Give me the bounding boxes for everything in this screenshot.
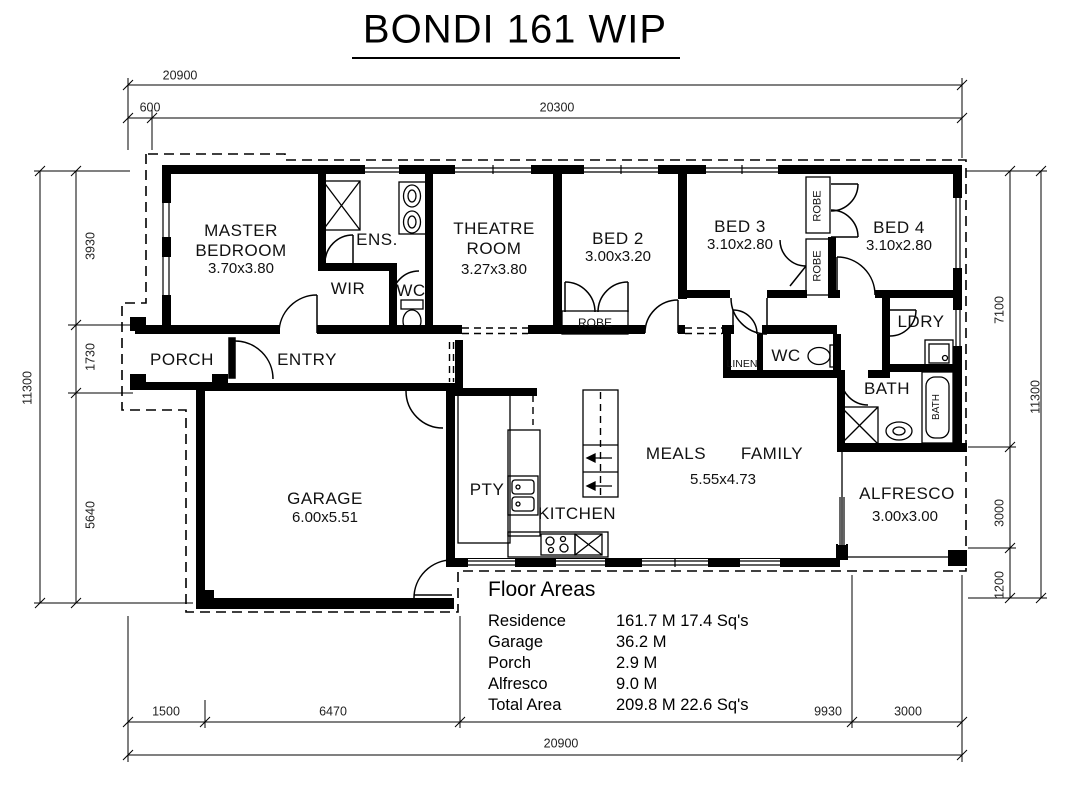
dim-bottom-seg-1500: 1500 — [152, 705, 180, 720]
room-label-bath: BATH — [864, 379, 910, 399]
page-title: BONDI 161 WIP — [363, 8, 667, 53]
room-label-alfresco: ALFRESCO — [859, 484, 955, 504]
room-label-ensuite: ENS. — [356, 230, 398, 250]
room-size-bed3: 3.10x2.80 — [707, 236, 773, 254]
dim-right-seg-1200: 1200 — [993, 571, 1008, 599]
floor-areas-value: 2.9 M — [616, 653, 657, 674]
room-size-alfresco: 3.00x3.00 — [872, 508, 938, 526]
room-size-bed2: 3.00x3.20 — [585, 248, 651, 266]
room-label-theatre: THEATRE ROOM — [439, 219, 549, 259]
room-size-theatre: 3.27x3.80 — [461, 261, 527, 279]
room-label-pantry: PTY — [470, 480, 505, 500]
floor-areas-value: 9.0 M — [616, 674, 657, 695]
room-label-meals: MEALS — [646, 444, 706, 464]
room-label-entry: ENTRY — [277, 350, 337, 370]
room-label-wc2: WC — [771, 346, 800, 366]
floor-areas-value: 209.8 M 22.6 Sq's — [616, 695, 748, 716]
room-label-family: FAMILY — [741, 444, 803, 464]
room-label-wir: WIR — [331, 279, 366, 299]
dim-right-seg-7100: 7100 — [993, 296, 1008, 324]
room-label-bed2: BED 2 — [592, 229, 644, 249]
floor-areas-table: Floor Areas Residence 161.7 M 17.4 Sq's … — [488, 578, 748, 716]
label-robe-bed3: ROBE — [812, 250, 825, 281]
floor-areas-label: Garage — [488, 632, 616, 653]
dim-left-seg-1730: 1730 — [84, 343, 99, 371]
dim-left-overall: 11300 — [21, 371, 36, 405]
room-label-wc: WC — [396, 281, 425, 301]
room-label-kitchen: KITCHEN — [538, 504, 616, 524]
dim-bottom-seg-6470: 6470 — [319, 705, 347, 720]
room-size-garage: 6.00x5.51 — [292, 509, 358, 527]
floor-areas-value: 161.7 M 17.4 Sq's — [616, 611, 748, 632]
room-label-bed3: BED 3 — [714, 217, 766, 237]
room-label-master-bedroom: MASTER BEDROOM — [176, 221, 306, 261]
room-label-bed4: BED 4 — [873, 218, 925, 238]
floor-areas-row-total: Total Area 209.8 M 22.6 Sq's — [488, 695, 748, 716]
floor-areas-label: Total Area — [488, 695, 616, 716]
floor-areas-value: 36.2 M — [616, 632, 666, 653]
room-label-garage: GARAGE — [287, 489, 363, 509]
floor-areas-label: Alfresco — [488, 674, 616, 695]
dim-top-overall: 20900 — [163, 69, 198, 84]
floor-areas-title: Floor Areas — [488, 578, 748, 602]
dim-bottom-seg-3000: 3000 — [894, 705, 922, 720]
room-label-linen: LINEN — [727, 358, 758, 370]
room-label-porch: PORCH — [150, 350, 214, 370]
dim-left-seg-3930: 3930 — [84, 232, 99, 260]
floor-areas-row-garage: Garage 36.2 M — [488, 632, 748, 653]
dim-top-offset: 600 — [140, 101, 161, 116]
floor-areas-label: Residence — [488, 611, 616, 632]
floor-plan-page: BONDI 161 WIP MASTER BEDROOM 3.70x3.80 E… — [0, 0, 1078, 793]
dim-right-overall: 11300 — [1029, 380, 1044, 414]
dim-left-seg-5640: 5640 — [84, 501, 99, 529]
floor-areas-row-porch: Porch 2.9 M — [488, 653, 748, 674]
label-robe-bed2: ROBE — [578, 316, 612, 330]
room-size-meals-family: 5.55x4.73 — [690, 471, 756, 489]
room-label-laundry: LDRY — [897, 312, 944, 332]
title-underline — [352, 57, 680, 59]
room-size-master-bedroom: 3.70x3.80 — [208, 260, 274, 278]
floor-areas-row-residence: Residence 161.7 M 17.4 Sq's — [488, 611, 748, 632]
dim-top-main: 20300 — [540, 101, 575, 116]
floor-areas-label: Porch — [488, 653, 616, 674]
dim-right-seg-3000: 3000 — [993, 499, 1008, 527]
floor-areas-row-alfresco: Alfresco 9.0 M — [488, 674, 748, 695]
dim-bottom-seg-9930: 9930 — [814, 705, 842, 720]
label-robe-bed4: ROBE — [812, 190, 825, 221]
room-size-bed4: 3.10x2.80 — [866, 237, 932, 255]
openings-dashed — [450, 328, 723, 495]
dim-bottom-overall: 20900 — [544, 737, 579, 752]
label-bathtub: BATH — [931, 394, 943, 420]
